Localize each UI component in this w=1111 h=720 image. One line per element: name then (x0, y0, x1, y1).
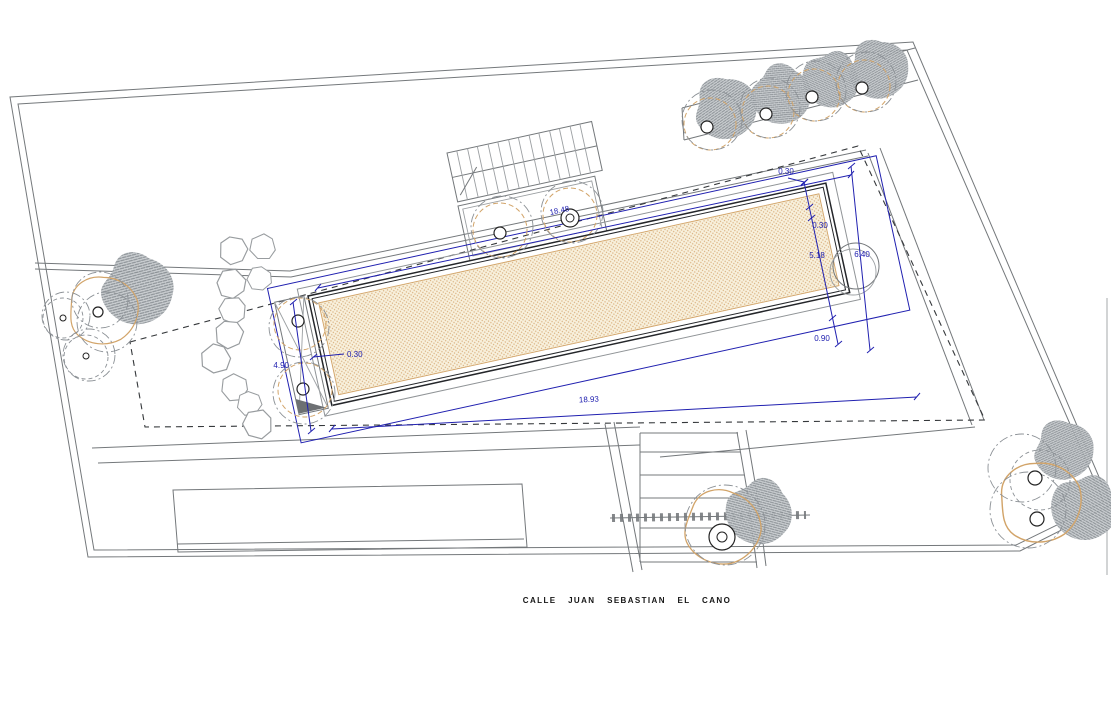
right-paving-edge (868, 153, 972, 425)
dim-pool-width: 5.18 (809, 251, 825, 260)
tree-cluster-bottom-right (988, 415, 1111, 548)
tree-trunk (806, 91, 818, 103)
pool-water (319, 194, 839, 395)
floor-plan: 0.30 0.30 5.18 0.90 6.40 18.48 18.93 4.9… (0, 0, 1111, 720)
tree-trunk (717, 532, 727, 542)
path-edge-upper (92, 427, 640, 448)
dim-bottom-gap: 0.90 (814, 334, 830, 343)
tree-canopy (91, 244, 185, 338)
shrub-trunk (60, 315, 66, 321)
stairs-upper (447, 121, 602, 201)
site-plan-sheet: 0.30 0.30 5.18 0.90 6.40 18.48 18.93 4.9… (0, 0, 1111, 720)
dim-coping-top: 0.30 (778, 167, 794, 176)
path-edge-lower (98, 445, 640, 463)
dim-length-bottom: 18.93 (579, 394, 600, 404)
tree-trunk (856, 82, 868, 94)
street-label: CALLE JUAN SEBASTIAN EL CANO (523, 596, 731, 605)
dim-edge-gap-right: 0.30 (812, 221, 828, 230)
deck (173, 484, 527, 552)
tree-trunk (760, 108, 772, 120)
shrub-trunk (83, 353, 89, 359)
dim-edge-gap-left: 0.30 (347, 350, 363, 359)
tree-trunk (93, 307, 103, 317)
right-paving-edge-2 (880, 148, 984, 420)
stepping-stones (196, 232, 277, 439)
tree-trunk (297, 383, 309, 395)
stairs-direction-arrow (455, 167, 482, 195)
tree-trunk (1030, 512, 1044, 526)
tree-trunk (494, 227, 506, 239)
tree-trunk (701, 121, 713, 133)
tree-trunk (1028, 471, 1042, 485)
tree-trunk (292, 315, 304, 327)
tree-trunk (566, 214, 574, 222)
dim-left-end-width: 4.90 (273, 361, 289, 370)
dim-spa-gap: 6.40 (854, 250, 870, 259)
tree-band-top-right (682, 35, 918, 150)
